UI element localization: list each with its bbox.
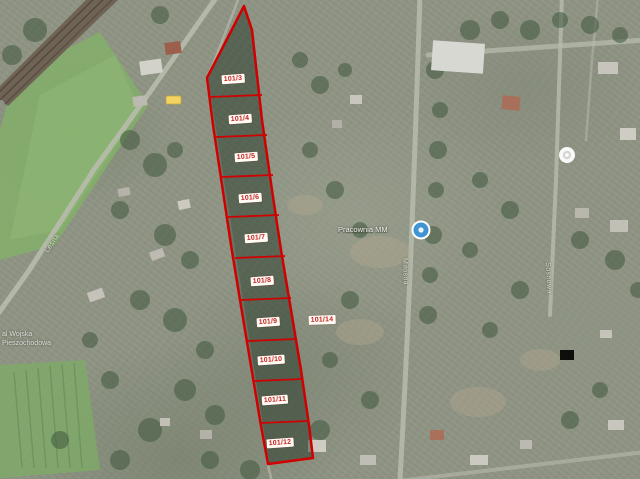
parcel-label: 101/5 bbox=[234, 152, 257, 163]
area-label-line1: al Wojska bbox=[2, 330, 51, 339]
adjacent-parcel-label: 101/14 bbox=[309, 315, 336, 325]
parcel-label: 101/12 bbox=[266, 438, 293, 449]
parcel-label: 101/8 bbox=[250, 276, 273, 287]
parcel-label: 101/7 bbox=[244, 233, 267, 244]
parcel-label: 101/6 bbox=[238, 193, 261, 204]
road-shield-icon bbox=[166, 96, 181, 104]
parcel-label: 101/9 bbox=[256, 317, 279, 328]
poi-label: Pracownia MM bbox=[338, 225, 388, 234]
area-label-line2: Pieszochodowa bbox=[2, 339, 51, 348]
parcel-label: 101/11 bbox=[262, 395, 289, 406]
white-poi-icon[interactable] bbox=[559, 147, 575, 163]
parcel-label: 101/4 bbox=[228, 114, 251, 125]
street-label-center: Miłosna bbox=[401, 258, 409, 285]
satellite-map-canvas[interactable]: 101/3 101/4 101/5 101/6 101/7 101/8 101/… bbox=[0, 0, 640, 479]
parcel-label: 101/10 bbox=[257, 355, 284, 366]
field-areas bbox=[0, 32, 148, 478]
poi-marker-icon[interactable] bbox=[412, 221, 431, 240]
area-label: al Wojska Pieszochodowa bbox=[2, 330, 51, 348]
parcel-label: 101/3 bbox=[221, 74, 244, 85]
map-artwork bbox=[0, 0, 640, 479]
